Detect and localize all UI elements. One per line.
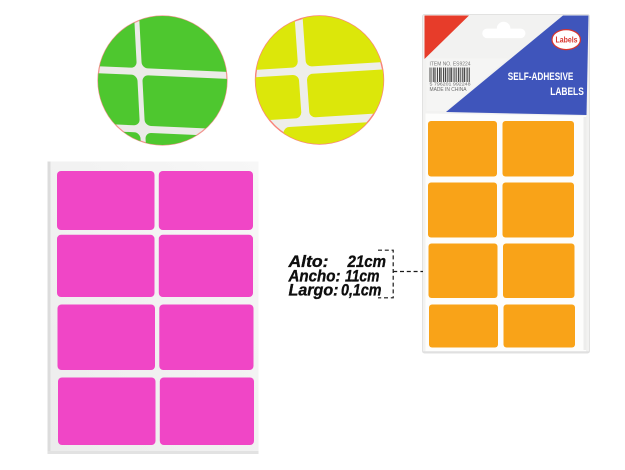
svg-text:5 796201 992248: 5 796201 992248: [430, 81, 472, 86]
svg-text:LABELS: LABELS: [550, 86, 584, 98]
svg-text:0,1cm: 0,1cm: [341, 282, 382, 300]
svg-text:MADE IN CHINA: MADE IN CHINA: [430, 87, 467, 93]
svg-text:Largo:: Largo:: [289, 282, 339, 300]
svg-text:Labels: Labels: [556, 35, 578, 45]
svg-text:SELF-ADHESIVE: SELF-ADHESIVE: [508, 71, 574, 83]
svg-text:ITEM NO. ES9224: ITEM NO. ES9224: [430, 62, 471, 68]
